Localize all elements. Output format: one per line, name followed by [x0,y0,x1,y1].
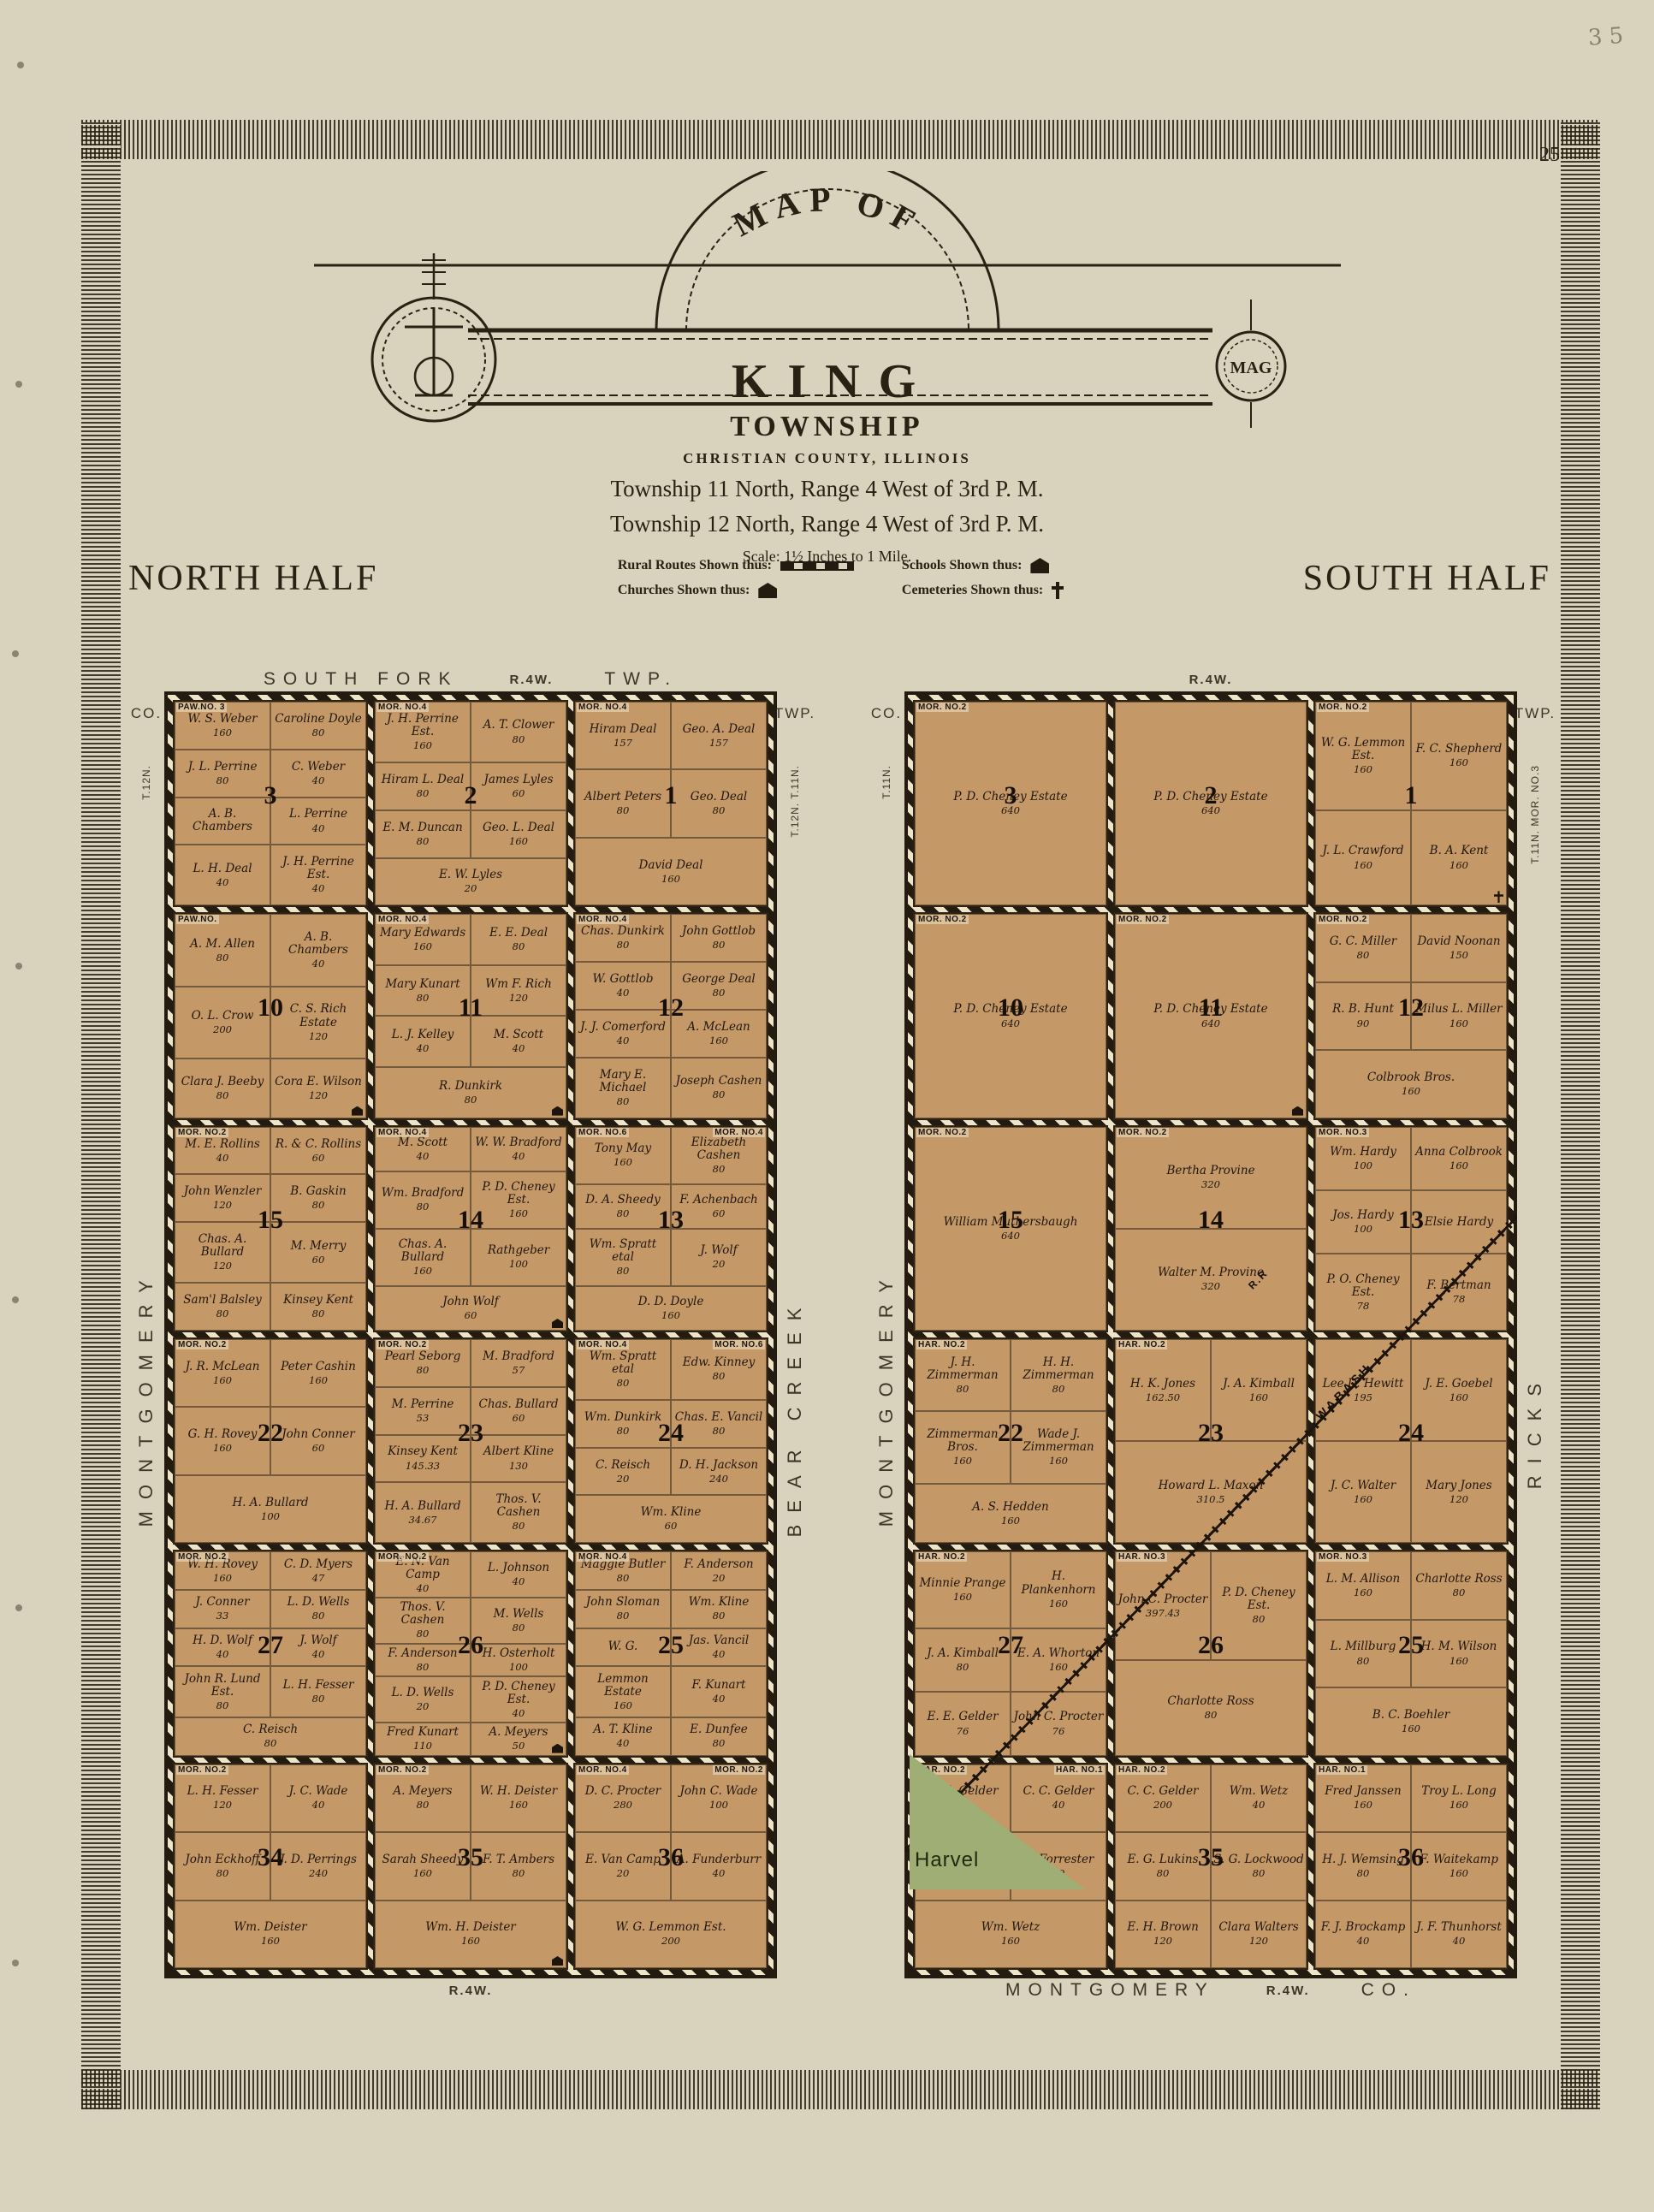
parcel: D. D. Doyle160 [575,1286,767,1331]
parcel-acres: 160 [1001,1935,1020,1947]
parcel: Clara J. Beeby80 [175,1059,270,1118]
parcel: J. Wolf20 [671,1229,767,1286]
section-north-27: MOR. NO.2W. H. Rovey160C. D. Myers47J. C… [173,1550,368,1757]
parcel: F. Anderson20 [671,1551,767,1590]
parcel: W. G. Lemmon Est.160 [1315,702,1411,810]
parcel-owner: B. Gaskin [290,1185,346,1198]
parcel-owner: Lemmon Estate [578,1673,668,1699]
parcel: C. C. Gelder200 [1115,1764,1211,1832]
parcel: John Wolf60 [375,1286,566,1331]
parcel-acres: 80 [465,1094,477,1106]
parcel-acres: 80 [513,1867,525,1879]
parcel-owner: Clara Walters [1218,1921,1298,1934]
parcel-list: Pearl Seborg80M. Bradford57M. Perrine53C… [375,1339,566,1543]
parcel: Sarah Sheedy160 [375,1832,471,1900]
parcel-list: Minnie Prange160H. Plankenhorn160J. A. K… [915,1551,1106,1755]
parcel-owner: Thos. V. Cashen [473,1493,564,1519]
parcel: Fred Kunart110 [375,1723,471,1756]
parcel: R. & C. Rollins60 [270,1127,366,1175]
parcel: C. Weber40 [270,750,366,798]
parcel-list: P. D. Cheney Estate640 [1115,914,1307,1118]
parcel: J. A. Kimball80 [915,1628,1011,1692]
parcel-acres: 40 [216,876,229,888]
parcel: J. L. Crawford160 [1315,810,1411,906]
parcel-owner: Walter M. Provine [1158,1266,1264,1279]
parcel-acres: 76 [1052,1725,1065,1737]
adjacent-township-label: SOUTH FORK [264,669,459,690]
parcel-owner: H. D. Wolf [193,1634,252,1647]
north-half-map: SOUTH FORK R.4W. TWP. CO. T.12N. MONTGOM… [128,667,813,2002]
parcel-list: G. C. Miller80David Noonan150R. B. Hunt9… [1315,914,1507,1118]
parcel-acres: 40 [1357,1935,1370,1947]
parcel-owner: Chas. A. Bullard [377,1238,468,1264]
parcel-acres: 60 [465,1309,477,1321]
parcel: E. W. Lyles20 [375,858,566,906]
parcel-list: W. H. Rovey160C. D. Myers47J. Conner33L.… [175,1551,366,1755]
parcel: Wm. Hardy100 [1315,1127,1411,1190]
south-half-title: SOUTH HALF [1303,558,1551,599]
parcel-owner: Jas. Vancil [689,1634,749,1647]
parcel-acres: 160 [614,1156,632,1168]
parcel-acres: 40 [417,1150,430,1162]
parcel-acres: 40 [312,774,325,786]
parcel-acres: 40 [513,1042,525,1054]
parcel: Milus L. Miller160 [1411,982,1507,1050]
legend-schools-label: Schools Shown thus: [902,558,1023,573]
parcel-acres: 80 [1052,1383,1065,1395]
range-label: R.4W. [1189,673,1233,687]
parcel: Geo. A. Deal157 [671,702,767,769]
parcel: Bertha Provine320 [1115,1127,1307,1229]
parcel: M. Perrine53 [375,1387,471,1435]
county-abbr: CO. [131,705,162,722]
parcel: H. H. Zimmerman80 [1011,1339,1106,1411]
section-south-11: MOR. NO.2P. D. Cheney Estate64011 [1113,912,1308,1119]
parcel-owner: F. Anderson [684,1558,753,1571]
parcel-owner: J. Wolf [700,1244,737,1257]
parcel-owner: Chas. E. Vancil [675,1411,762,1424]
parcel-owner: E. H. Brown [1127,1921,1199,1934]
parcel-acres: 80 [1357,1655,1370,1667]
parcel-acres: 160 [1449,1391,1468,1403]
plat-maps: SOUTH FORK R.4W. TWP. CO. T.12N. MONTGOM… [128,667,1553,2002]
parcel-owner: William Muthersbaugh [944,1216,1078,1229]
parcel: J. Conner33 [175,1590,270,1628]
parcel-list: J. H. Zimmerman80H. H. Zimmerman80Zimmer… [915,1339,1106,1543]
parcel-owner: Minnie Prange [919,1577,1005,1590]
parcel: Colbrook Bros.160 [1315,1050,1507,1118]
parcel: B. Gaskin80 [270,1174,366,1222]
parcel-acres: 100 [709,1799,728,1811]
parcel-acres: 40 [312,822,325,834]
parcel-acres: 80 [216,1699,229,1711]
north-map-left-edge: CO. T.12N. MONTGOMERY [128,691,164,1978]
parcel-acres: 160 [614,1699,632,1711]
parcel-acres: 162.50 [1146,1391,1180,1403]
parcel: Wade J. Zimmerman160 [1011,1411,1106,1483]
parcel: David Noonan150 [1411,914,1507,981]
parcel: E. E. Gelder76 [915,1692,1011,1755]
section-south-10: MOR. NO.2P. D. Cheney Estate64010 [913,912,1108,1119]
parcel-acres: 100 [1354,1223,1372,1235]
parcel-acres: 80 [713,1370,726,1382]
parcel-acres: 160 [1354,1586,1372,1598]
parcel-owner: A. Funderburr [677,1853,761,1866]
parcel-owner: L. D. Wells [288,1596,350,1609]
parcel: W. G. Lemmon Est.200 [575,1901,767,1968]
parcel: Wm. Wetz40 [1211,1764,1307,1832]
parcel-acres: 76 [957,1725,969,1737]
parcel-acres: 80 [312,1693,325,1705]
parcel-acres: 60 [312,1152,325,1164]
parcel-acres: 80 [417,1799,430,1811]
parcel-acres: 80 [1157,1867,1170,1879]
section-south-27: HAR. NO.2Minnie Prange160H. Plankenhorn1… [913,1550,1108,1757]
parcel-owner: Albert Kline [483,1445,554,1458]
parcel-owner: A. McLean [687,1021,750,1034]
parcel-owner: Wm. Hardy [1330,1146,1396,1159]
parcel-acres: 160 [1449,1799,1468,1811]
parcel-acres: 397.43 [1146,1607,1180,1619]
parcel-acres: 20 [617,1867,630,1879]
parcel-owner: George Deal [682,973,755,986]
parcel-acres: 160 [1001,1515,1020,1527]
parcel-owner: F. Waitekamp [1420,1853,1498,1866]
parcel: Charlotte Ross80 [1411,1551,1507,1619]
parcel-acres: 80 [957,1383,969,1395]
parcel-owner: Colbrook Bros. [1367,1071,1455,1084]
parcel: Wm F. Rich120 [471,965,566,1017]
legend: Rural Routes Shown thus: Schools Shown t… [618,558,1064,599]
parcel-acres: 160 [709,1035,728,1047]
parcel: M. Bradford57 [471,1339,566,1387]
parcel-owner: John C. Wade [679,1785,757,1798]
parcel-owner: Geo. L. Deal [483,821,554,834]
registration-dot [12,1960,19,1966]
parcel-owner: L. H. Fesser [187,1785,258,1798]
parcel: L. Perrine40 [270,798,366,845]
section-north-15: MOR. NO.2M. E. Rollins40R. & C. Rollins6… [173,1125,368,1332]
parcel-owner: W. H. Rovey [187,1558,258,1571]
parcel-list: Lee D. Hewitt195J. E. Goebel160J. C. Wal… [1315,1339,1507,1543]
parcel-owner: C. Reisch [596,1459,650,1472]
parcel-acres: 160 [1449,1017,1468,1029]
school-icon [1292,1106,1303,1116]
parcel-owner: Wm F. Rich [485,978,552,991]
parcel-acres: 80 [617,1572,630,1584]
parcel-acres: 80 [312,1610,325,1622]
south-map-top-labels: R.4W. [868,667,1553,691]
section-south-3: MOR. NO.2P. D. Cheney Estate6403 [913,700,1108,907]
parcel: M. Scott40 [375,1127,471,1171]
parcel-acres: 160 [213,1572,232,1584]
parcel: F. Bertman78 [1411,1254,1507,1331]
parcel-list: H. K. Jones162.50J. A. Kimball160Howard … [1115,1339,1307,1543]
parcel-list: Wm. Hardy100Anna Colbrook160Jos. Hardy10… [1315,1127,1507,1331]
parcel: D. H. Jackson240 [671,1448,767,1496]
parcel: H. K. Jones162.50 [1115,1339,1211,1441]
parcel-owner: H. Osterholt [483,1647,555,1660]
parcel: J. H. Perrine Est.40 [270,845,366,905]
parcel-owner: H. Plankenhorn [1013,1570,1104,1596]
section-south-2: P. D. Cheney Estate6402 [1113,700,1308,907]
parcel: A. McLean160 [671,1010,767,1058]
parcel-list: L. H. Fesser120J. C. Wade40John Eckhoff8… [175,1764,366,1968]
parcel-acres: 160 [953,1455,972,1467]
parcel: Troy L. Long160 [1411,1764,1507,1832]
parcel: David Deal160 [575,838,767,905]
parcel-owner: J. D. Perrings [280,1853,357,1866]
parcel-acres: 160 [413,940,432,952]
parcel-owner: Chas. Bullard [479,1398,559,1411]
school-icon [552,1319,563,1328]
parcel-owner: A. Meyers [393,1785,452,1798]
parcel-owner: L. J. Kelley [392,1029,454,1041]
parcel: Wm. Kline60 [575,1495,767,1543]
parcel-owner: W. H. Deister [480,1785,557,1798]
parcel-owner: Wm. Wetz [981,1921,1040,1934]
parcel-acres: 160 [1449,1867,1468,1879]
parcel-acres: 80 [513,733,525,745]
parcel-acres: 80 [617,1265,630,1277]
parcel: J. A. Kimball160 [1211,1339,1307,1441]
parcel: A. M. Allen80 [175,914,270,986]
parcel-acres: 160 [1049,1661,1068,1673]
township-range-marker: T.11N. [880,765,892,799]
section-north-36: MOR. NO.4MOR. NO.2D. C. Procter280John C… [573,1763,768,1970]
parcel-owner: J. H. Perrine Est. [273,856,364,881]
parcel-acres: 40 [713,1693,726,1705]
section-north-11: MOR. NO.4Mary Edwards160E. E. Deal80Mary… [373,912,568,1119]
parcel-owner: E. N. Van Camp [377,1556,468,1581]
rural-route-icon [780,561,854,571]
parcel-acres: 120 [1153,1935,1172,1947]
parcel: E. N. Van Camp40 [375,1551,471,1598]
parcel: C. Reisch20 [575,1448,671,1496]
parcel-acres: 240 [309,1867,328,1879]
parcel: Sam'l Balsley80 [175,1283,270,1331]
registration-dot [15,1604,22,1611]
parcel-acres: 640 [1001,1230,1020,1242]
parcel: Lee D. Hewitt195 [1315,1339,1411,1441]
parcel-list: Wm. Spratt etal80Edw. Kinney80Wm. Dunkir… [575,1339,767,1543]
parcel-owner: J. J. Comerford [580,1021,666,1034]
parcel: A. S. Hedden160 [915,1484,1106,1543]
parcel: Wm. Kline80 [671,1590,767,1628]
parcel-acres: 47 [312,1572,325,1584]
church-icon [758,583,777,598]
parcel-acres: 80 [513,940,525,952]
parcel-owner: Bertha Provine [1166,1165,1254,1177]
parcel: Hiram L. Deal80 [375,762,471,810]
parcel: C. S. Rich Estate120 [270,987,366,1059]
parcel-owner: Jos. Hardy [1332,1209,1394,1222]
parcel-owner: A. M. Allen [190,938,255,951]
parcel-owner: J. Wolf [299,1634,336,1647]
parcel-acres: 40 [312,1648,325,1660]
parcel-acres: 40 [617,1737,630,1749]
parcel-owner: J. F. Thunhorst [1416,1921,1502,1934]
parcel-acres: 160 [413,1265,432,1277]
range-label: R.4W. [1266,1984,1310,1998]
parcel: E. E. Deal80 [471,914,566,965]
parcel-owner: M. Scott [398,1136,448,1149]
parcel-acres: 160 [1402,1085,1420,1097]
adjacent-county-label: MONTGOMERY [135,817,157,1978]
parcel: F. J. Brockamp40 [1315,1901,1411,1968]
parcel: Edw. Kinney80 [671,1339,767,1400]
section-north-22: MOR. NO.2J. R. McLean160Peter Cashin160G… [173,1337,368,1545]
parcel: B. A. Kent160 [1411,810,1507,906]
map-of-text: MAP OF [726,180,929,244]
parcel-list: M. E. Rollins40R. & C. Rollins60John Wen… [175,1127,366,1331]
parcel-acres: 160 [413,739,432,751]
twp-abbr: TWP. [774,705,815,722]
parcel-owner: P. D. Cheney Est. [473,1181,564,1207]
parcel: J. D. Perrings240 [270,1832,366,1900]
parcel-owner: M. E. Rollins [185,1138,260,1151]
parcel: John C. Procter397.43 [1115,1551,1211,1660]
parcel-list: W. S. Weber160Caroline Doyle80J. L. Perr… [175,702,366,905]
parcel-owner: L. H. Deal [193,863,252,875]
section-north-14: MOR. NO.4M. Scott40W. W. Bradford40Wm. B… [373,1125,568,1332]
parcel: J. H. Perrine Est.160 [375,702,471,762]
parcel-owner: C. Reisch [243,1723,298,1736]
parcel-acres: 50 [513,1740,525,1752]
parcel-owner: Hiram Deal [590,723,657,736]
parcel: W. H. Deister160 [471,1764,566,1832]
parcel: John Wenzler120 [175,1174,270,1222]
parcel-owner: L. Johnson [488,1562,549,1574]
parcel-owner: Wade J. Zimmerman [1013,1428,1104,1454]
adjacent-county-label: MONTGOMERY [1005,1980,1215,2001]
parcel: Albert Peters80 [575,769,671,837]
parcel-acres: 80 [216,774,229,786]
parcel-acres: 160 [1449,1655,1468,1667]
parcel: Mary Jones120 [1411,1441,1507,1543]
parcel-owner: P. O. Cheney Est. [1318,1273,1408,1299]
section-south-12: MOR. NO.2G. C. Miller80David Noonan150R.… [1313,912,1509,1119]
section-south-25: MOR. NO.3L. M. Allison160Charlotte Ross8… [1313,1550,1509,1757]
parcel-owner: Wm. Spratt etal [578,1350,668,1376]
parcel: Geo. L. Deal160 [471,810,566,858]
section-icons [1292,1106,1303,1116]
parcel: P. D. Cheney Estate640 [915,914,1106,1118]
parcel-owner: Elizabeth Cashen [673,1136,764,1162]
parcel: W. S. Weber160 [175,702,270,750]
parcel-owner: M. Bradford [483,1350,554,1363]
parcel-owner: Wm. Bradford [382,1187,465,1200]
parcel-owner: Joseph Cashen [676,1075,762,1088]
parcel-owner: G. C. Miller [1330,935,1397,948]
parcel-owner: H. A. Bullard [384,1500,460,1513]
parcel-acres: 40 [1453,1935,1466,1947]
parcel: John C. Wade100 [671,1764,767,1832]
section-icons [552,1744,563,1753]
parcel-acres: 20 [417,1700,430,1712]
parcel-owner: Milus L. Miller [1415,1003,1502,1016]
parcel-list: Mary Edwards160E. E. Deal80Mary Kunart80… [375,914,566,1118]
parcel: L. Millburg80 [1315,1620,1411,1687]
parcel-owner: Geo. A. Deal [683,723,756,736]
parcel-owner: P. D. Cheney Est. [1213,1586,1304,1612]
parcel: F. C. Shepherd160 [1411,702,1507,810]
parcel: Rathgeber100 [471,1229,566,1286]
parcel-owner: Mary Edwards [380,927,465,940]
parcel-owner: Anna Colbrook [1415,1146,1503,1159]
parcel: H. A. Bullard34.67 [375,1482,471,1543]
parcel-acres: 120 [213,1799,232,1811]
parcel-acres: 20 [713,1572,726,1584]
parcel: H. A. Bullard100 [175,1475,366,1543]
parcel: Chas. E. Vancil80 [671,1400,767,1448]
parcel: E. H. Brown120 [1115,1901,1211,1968]
parcel-acres: 80 [713,987,726,999]
harvel-town-label: Harvel [915,1848,979,1872]
parcel-list: J. H. Perrine Est.160A. T. Clower80Hiram… [375,702,566,905]
parcel-acres: 20 [465,882,477,894]
parcel-list: P. D. Cheney Estate640 [1115,702,1307,905]
parcel-owner: Fred Janssen [1325,1785,1401,1798]
parcel-owner: E. E. Deal [489,927,548,940]
parcel-acres: 40 [216,1152,229,1164]
section-icons [552,1106,563,1116]
parcel: L. D. Wells80 [270,1590,366,1628]
parcel: C. D. Myers47 [270,1551,366,1590]
parcel-acres: 80 [513,1622,525,1634]
parcel-acres: 80 [617,1377,630,1389]
parcel-acres: 200 [661,1935,680,1947]
section-north-26: MOR. NO.2E. N. Van Camp40L. Johnson40Tho… [373,1550,568,1757]
parcel-owner: L. H. Fesser [283,1679,354,1692]
parcel: G. C. Miller80 [1315,914,1411,981]
cemetery-icon [1494,891,1503,903]
parcel-list: A. M. Allen80A. B. Chambers40O. L. Crow2… [175,914,366,1118]
section-north-12: MOR. NO.4Chas. Dunkirk80John Gottlob80W.… [573,912,768,1119]
parcel-acres: 80 [1357,1867,1370,1879]
parcel-acres: 80 [713,1425,726,1437]
parcel-owner: E. E. Gelder [927,1711,998,1723]
parcel-acres: 100 [261,1510,280,1522]
parcel: Thos. V. Cashen80 [471,1482,566,1543]
parcel-acres: 80 [713,1163,726,1175]
cemetery-icon [1052,582,1064,599]
township-line-1: Township 11 North, Range 4 West of 3rd P… [0,476,1654,502]
parcel: R. B. Hunt90 [1315,982,1411,1050]
parcel: J. C. Wade40 [270,1764,366,1832]
parcel-acres: 200 [1153,1799,1172,1811]
parcel-acres: 80 [417,1364,430,1376]
parcel: Chas. Dunkirk80 [575,914,671,962]
parcel: H. D. Wolf40 [175,1628,270,1667]
parcel-acres: 40 [713,1867,726,1879]
parcel-owner: M. Perrine [392,1398,454,1411]
parcel-acres: 640 [1001,804,1020,816]
parcel-acres: 157 [709,737,728,749]
parcel-acres: 160 [1354,763,1372,775]
parcel-owner: W. S. Weber [187,713,257,726]
parcel-owner: F. Achenbach [679,1194,757,1207]
parcel: John Eckhoff80 [175,1832,270,1900]
twp-abbr: TWP. [1515,705,1556,722]
parcel-owner: J. L. Crawford [1322,845,1403,857]
parcel: E. G. Lukins80 [1115,1832,1211,1900]
north-map-bottom-labels: R.4W. [128,1978,813,2002]
south-half-map: R.4W. CO. T.11N. MONTGOMERY MOR. NO.2P. … [868,667,1553,2002]
parcel-acres: 80 [713,939,726,951]
parcel: James Lyles60 [471,762,566,810]
parcel-owner: F. C. Shepherd [1416,743,1503,756]
